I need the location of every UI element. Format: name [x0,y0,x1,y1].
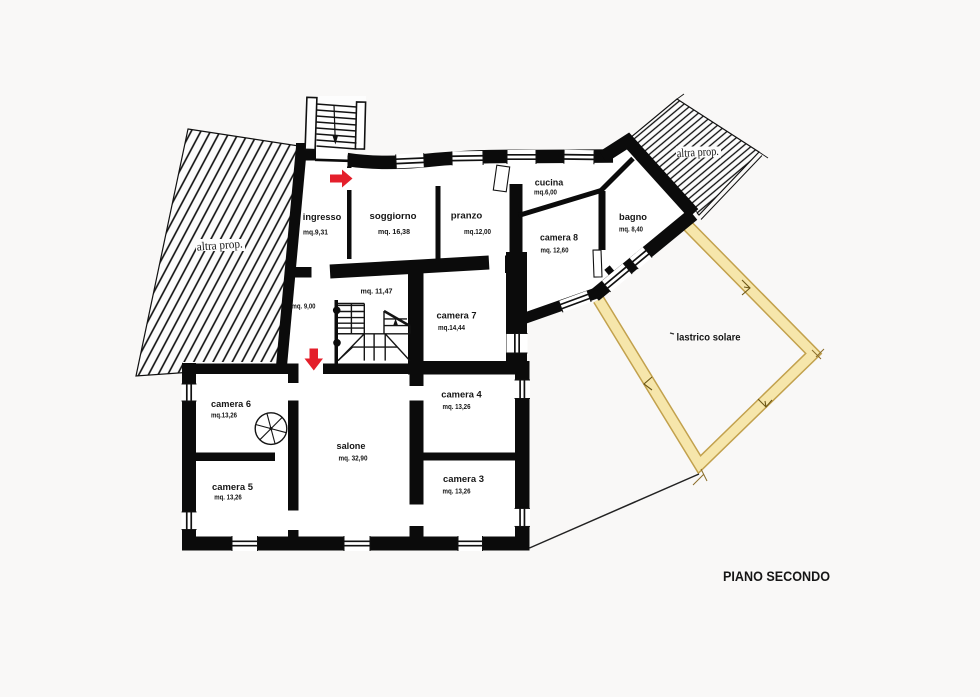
svg-text:salone: salone [337,441,366,452]
svg-text:mq. 13,26: mq. 13,26 [443,404,471,411]
svg-text:mq.6,00: mq.6,00 [534,190,557,197]
svg-text:mq. 12,60: mq. 12,60 [541,248,569,255]
svg-text:pranzo: pranzo [451,211,483,222]
svg-text:mq.13,26: mq.13,26 [211,413,237,420]
svg-text:camera 3: camera 3 [443,474,484,485]
svg-text:mq. 32,90: mq. 32,90 [339,456,368,463]
svg-text:mq. 9,00: mq. 9,00 [292,304,316,311]
svg-text:camera 8: camera 8 [540,233,578,244]
svg-text:camera 4: camera 4 [441,390,482,401]
svg-text:ingresso: ingresso [303,212,342,223]
svg-text:PIANO SECONDO: PIANO SECONDO [723,569,830,584]
svg-text:altra prop.: altra prop. [676,144,719,160]
svg-text:mq. 8,40: mq. 8,40 [619,227,643,234]
svg-text:mq. 16,38: mq. 16,38 [378,229,410,236]
svg-text:camera 5: camera 5 [212,482,254,493]
svg-text:mq. 13,26: mq. 13,26 [214,495,242,502]
svg-text:lastrico solare: lastrico solare [677,333,741,344]
svg-text:mq. 11,47: mq. 11,47 [361,289,393,296]
svg-text:mq. 13,26: mq. 13,26 [443,489,471,496]
svg-text:camera 6: camera 6 [211,399,251,410]
svg-text:mq.14,44: mq.14,44 [438,325,465,332]
svg-text:mq.12,00: mq.12,00 [464,229,491,236]
svg-text:bagno: bagno [619,212,647,223]
svg-text:camera 7: camera 7 [437,311,477,322]
svg-text:soggiorno: soggiorno [370,211,417,222]
svg-text:cucina: cucina [535,178,564,189]
svg-text:mq.9,31: mq.9,31 [303,230,328,237]
